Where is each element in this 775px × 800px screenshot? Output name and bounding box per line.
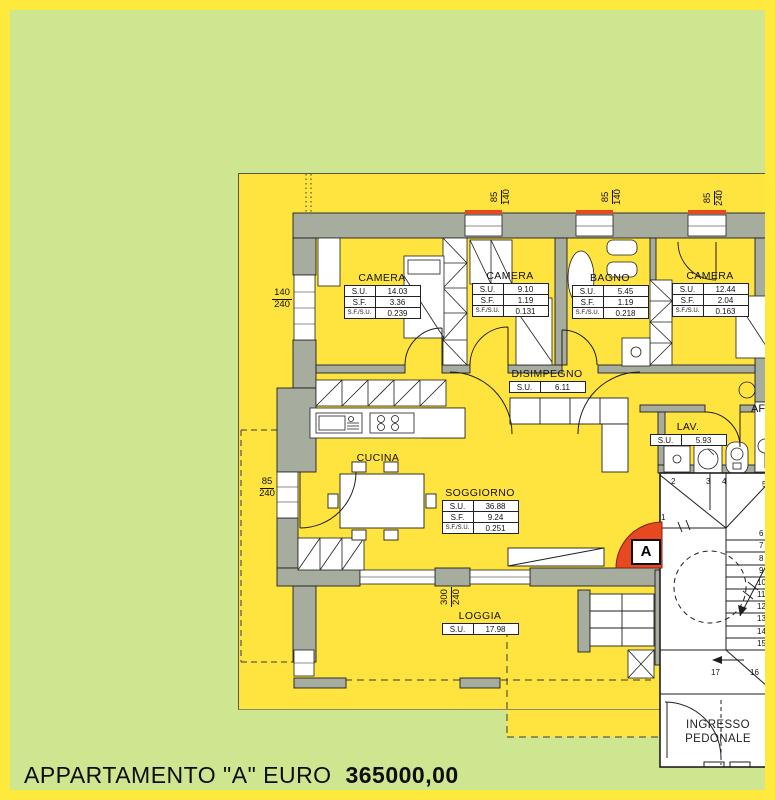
pedestrian-entrance-label: INGRESSO PEDONALE — [663, 718, 773, 746]
apartment-price: 365000,00 — [345, 762, 458, 788]
apartment-plot-extension — [507, 710, 660, 737]
title-bar: APPARTAMENTO "A" EURO 365000,00 — [24, 762, 459, 789]
apartment-plot-area — [238, 173, 775, 710]
floorplan-page: CAMERA S.U.14.03 S.F.3.36 S.F./S.U.0.239… — [0, 0, 775, 800]
apartment-title: APPARTAMENTO "A" EURO — [24, 762, 332, 788]
